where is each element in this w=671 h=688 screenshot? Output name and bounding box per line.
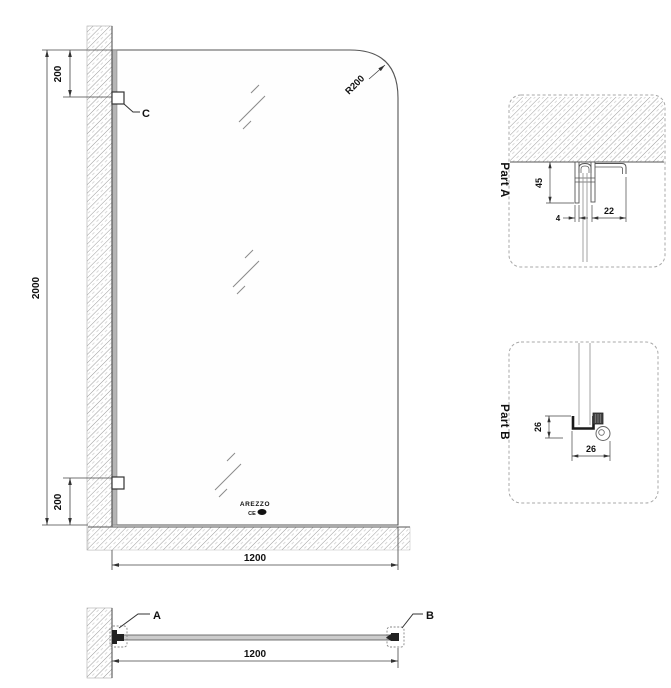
bracket-b-label: B xyxy=(426,610,434,622)
brand-logo-text: AREZZO xyxy=(240,501,270,508)
part-b-detail: Part B 26 26 xyxy=(498,342,658,503)
wall-bracket-top xyxy=(112,92,124,104)
plan-bracket-a xyxy=(112,630,117,644)
plan-wall-hatch xyxy=(87,608,112,678)
elevation-view: AREZZO CE C R200 2000 200 200 1200 xyxy=(31,26,410,570)
dim-1200-main-text: 1200 xyxy=(244,553,267,564)
dim-4-text: 4 xyxy=(556,214,561,223)
part-a-channel-left-wall xyxy=(575,162,579,203)
dim-200-top-text: 200 xyxy=(53,65,64,82)
wall-bracket-bottom xyxy=(112,477,124,489)
bracket-a-label: A xyxy=(153,610,161,622)
logo-oval-icon xyxy=(258,509,267,515)
dim-1200-plan-text: 1200 xyxy=(244,649,267,660)
ce-mark-text: CE xyxy=(248,511,256,517)
floor-hatch xyxy=(88,527,410,550)
dim-26-horizontal-text: 26 xyxy=(586,444,596,454)
part-b-screw-head-inner xyxy=(599,430,605,436)
bracket-c-label: C xyxy=(142,108,150,120)
plan-bracket-a-clamp xyxy=(117,634,124,641)
part-a-ceiling-hatch xyxy=(510,97,664,162)
plan-view: A B 1200 xyxy=(87,608,434,678)
part-a-detail: Part A 45 4 22 xyxy=(498,95,665,267)
label-b-leader-line xyxy=(402,614,423,628)
dim-2000-text: 2000 xyxy=(31,276,42,299)
dim-26-vertical-text: 26 xyxy=(533,422,543,432)
dim-200-bottom-text: 200 xyxy=(53,493,64,510)
technical-drawing-page: AREZZO CE C R200 2000 200 200 1200 xyxy=(0,0,671,688)
wall-hatch xyxy=(87,26,112,550)
plan-glass-panel xyxy=(116,635,390,640)
part-b-callout-box xyxy=(509,342,658,503)
part-a-title: Part A xyxy=(498,162,510,197)
part-b-title: Part B xyxy=(498,404,510,440)
dim-45-text: 45 xyxy=(534,178,544,188)
glass-panel xyxy=(112,50,398,525)
shower-screen-drawing: AREZZO CE C R200 2000 200 200 1200 xyxy=(0,0,671,688)
wall-profile-strip xyxy=(113,50,118,525)
label-a-leader-line xyxy=(119,614,150,628)
dim-22-text: 22 xyxy=(604,206,614,216)
